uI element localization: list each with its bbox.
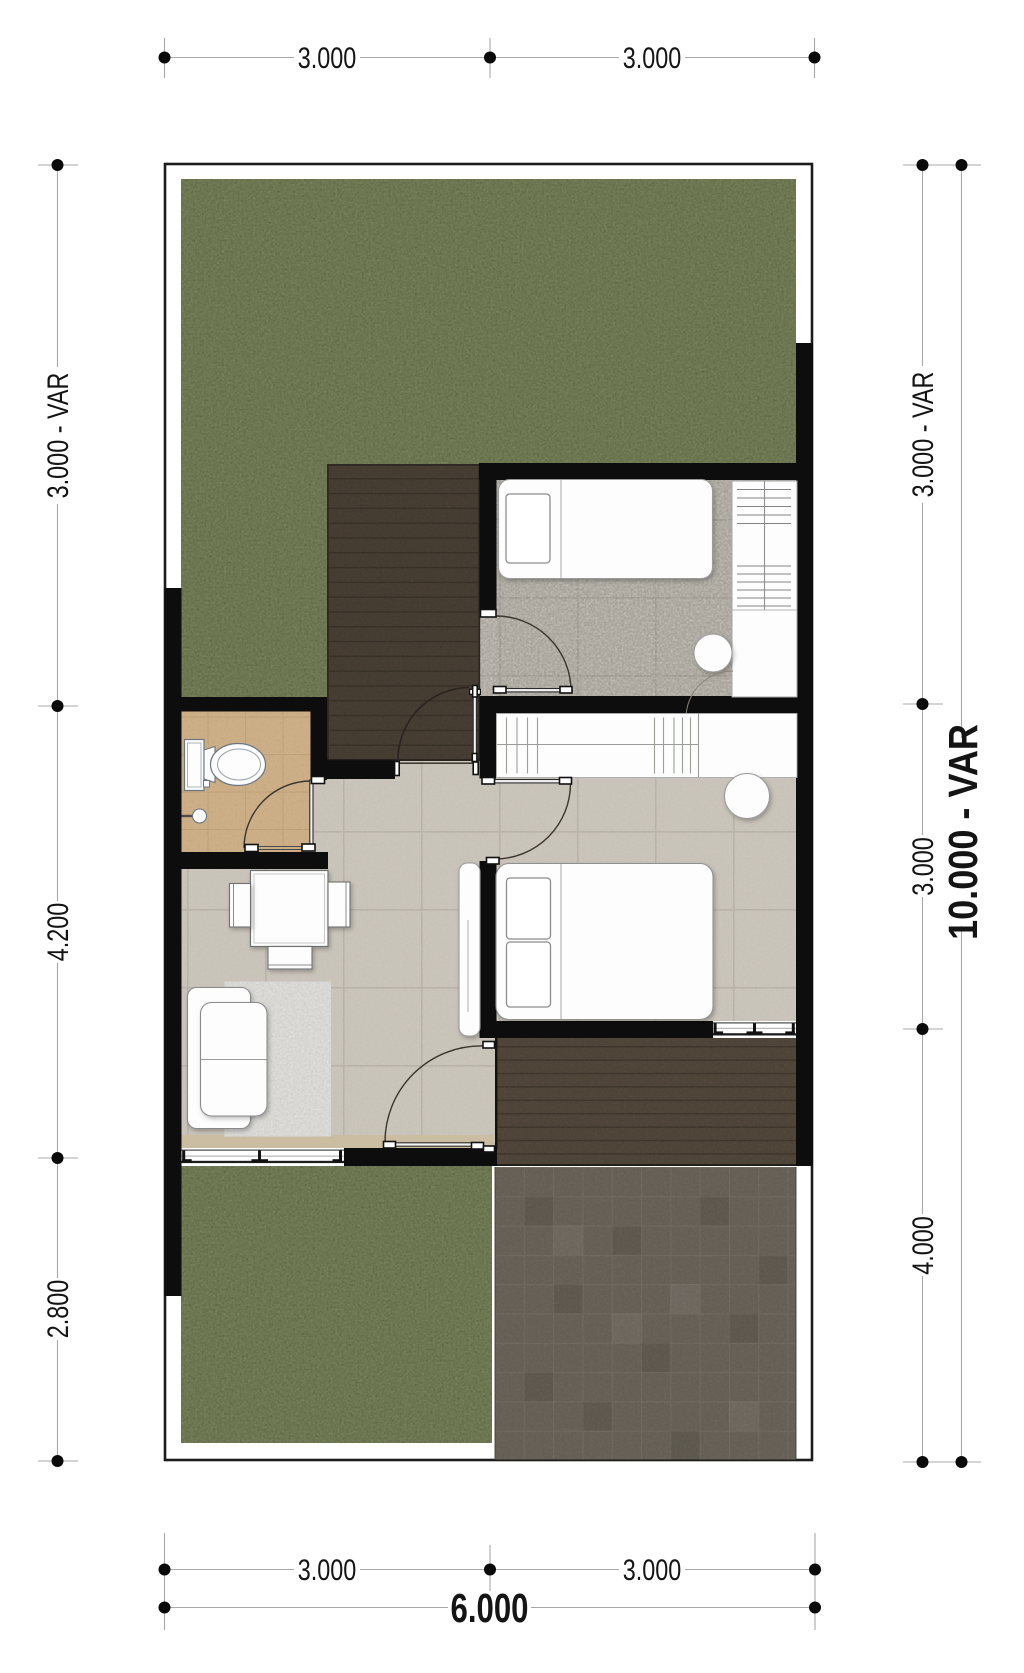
svg-text:3.000: 3.000 bbox=[298, 41, 357, 74]
svg-text:3.000 - VAR: 3.000 - VAR bbox=[41, 373, 74, 499]
svg-text:6.000: 6.000 bbox=[451, 1585, 529, 1631]
svg-text:10.000 - VAR: 10.000 - VAR bbox=[941, 724, 987, 940]
svg-text:3.000: 3.000 bbox=[298, 1553, 357, 1586]
svg-text:4.000: 4.000 bbox=[906, 1216, 939, 1275]
svg-text:3.000 - VAR: 3.000 - VAR bbox=[906, 372, 939, 498]
svg-text:3.000: 3.000 bbox=[623, 1553, 682, 1586]
svg-text:2.800: 2.800 bbox=[41, 1280, 74, 1339]
svg-text:3.000: 3.000 bbox=[906, 837, 939, 896]
svg-text:4.200: 4.200 bbox=[41, 903, 74, 962]
svg-text:3.000: 3.000 bbox=[623, 41, 682, 74]
